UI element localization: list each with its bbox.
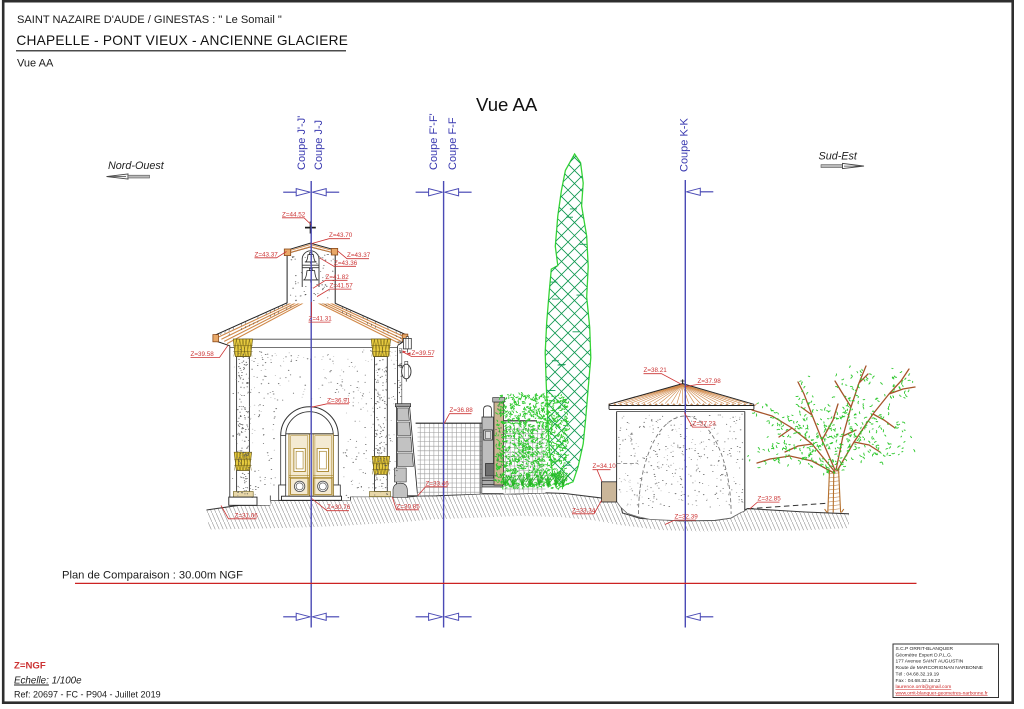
svg-text:Z=39.58: Z=39.58: [191, 351, 215, 358]
svg-text:Coupe K-K: Coupe K-K: [679, 118, 691, 172]
svg-text:Nord-Ouest: Nord-Ouest: [108, 160, 165, 172]
svg-text:Z=31.06: Z=31.06: [235, 512, 259, 519]
svg-text:Vue AA: Vue AA: [17, 58, 54, 70]
svg-text:CHAPELLE - PONT VIEUX - ANCIEN: CHAPELLE - PONT VIEUX - ANCIENNE GLACIER…: [16, 33, 348, 48]
svg-text:Coupe J'-J': Coupe J'-J': [296, 116, 308, 170]
svg-text:Sud-Est: Sud-Est: [819, 151, 858, 163]
svg-text:Z=38.21: Z=38.21: [644, 367, 668, 374]
svg-text:Z=43.70: Z=43.70: [329, 232, 353, 239]
svg-text:Coupe F'-F': Coupe F'-F': [428, 113, 440, 170]
svg-text:Ref: 20697 - FC - P904 - Juill: Ref: 20697 - FC - P904 - Juillet 2019: [14, 690, 161, 700]
svg-text:Z=43.37: Z=43.37: [255, 251, 279, 258]
svg-text:Fax : 04.68.32.18.22: Fax : 04.68.32.18.22: [896, 678, 941, 684]
svg-text:Z=43.36: Z=43.36: [334, 260, 358, 267]
svg-text:Z=33.46: Z=33.46: [426, 480, 450, 487]
svg-text:Z=34.10: Z=34.10: [593, 463, 617, 470]
svg-text:Z=39.57: Z=39.57: [412, 350, 436, 357]
svg-text:Z=37.23: Z=37.23: [693, 421, 717, 428]
svg-text:Z=37.98: Z=37.98: [698, 378, 722, 385]
svg-text:Plan de Comparaison : 30.00m: Plan de Comparaison : 30.00m NGF: [62, 570, 243, 582]
svg-text:Coupe F-F: Coupe F-F: [447, 117, 459, 170]
svg-text:laurence.orrit@gmail.com: laurence.orrit@gmail.com: [896, 684, 952, 690]
svg-text:Z=30.76: Z=30.76: [327, 504, 351, 511]
svg-text:Z=36.91: Z=36.91: [327, 397, 351, 404]
svg-text:177 Avenue SAINT AUGUSTIN: 177 Avenue SAINT AUGUSTIN: [896, 659, 964, 665]
svg-text:Z=43.37: Z=43.37: [347, 252, 371, 259]
svg-text:Echelle: 1/100e: Echelle: 1/100e: [14, 676, 82, 687]
svg-text:Z=32.85: Z=32.85: [758, 496, 782, 503]
svg-text:Z=41.31: Z=41.31: [309, 316, 333, 323]
svg-text:Z=NGF: Z=NGF: [14, 661, 46, 672]
svg-text:Z=33.34: Z=33.34: [572, 507, 596, 514]
svg-text:Coupe J-J: Coupe J-J: [313, 120, 325, 170]
svg-text:Géomètre Expert D.P.L.G.: Géomètre Expert D.P.L.G.: [896, 652, 953, 658]
svg-text:Vue AA: Vue AA: [476, 94, 538, 115]
svg-text:Z=36.88: Z=36.88: [450, 407, 474, 414]
svg-text:Z=44.52: Z=44.52: [282, 211, 306, 218]
svg-text:Z=32.39: Z=32.39: [675, 514, 699, 521]
svg-text:S.C.P ORRIT-BLANQUER: S.C.P ORRIT-BLANQUER: [896, 646, 954, 652]
svg-text:Z=30.85: Z=30.85: [397, 503, 421, 510]
svg-text:Z=41.82: Z=41.82: [326, 274, 350, 281]
svg-text:Z=41.57: Z=41.57: [330, 283, 354, 290]
svg-text:www.orrit-blanquer-geometres-n: www.orrit-blanquer-geometres-narbonne.fr: [896, 690, 989, 696]
svg-text:Route de MARCORIGNAN NARBONNE: Route de MARCORIGNAN NARBONNE: [896, 665, 984, 671]
svg-text:SAINT NAZAIRE D'AUDE / GINESTA: SAINT NAZAIRE D'AUDE / GINESTAS : " Le S…: [17, 14, 282, 26]
svg-text:Tél : 04.68.32.19.19: Tél : 04.68.32.19.19: [896, 671, 940, 677]
